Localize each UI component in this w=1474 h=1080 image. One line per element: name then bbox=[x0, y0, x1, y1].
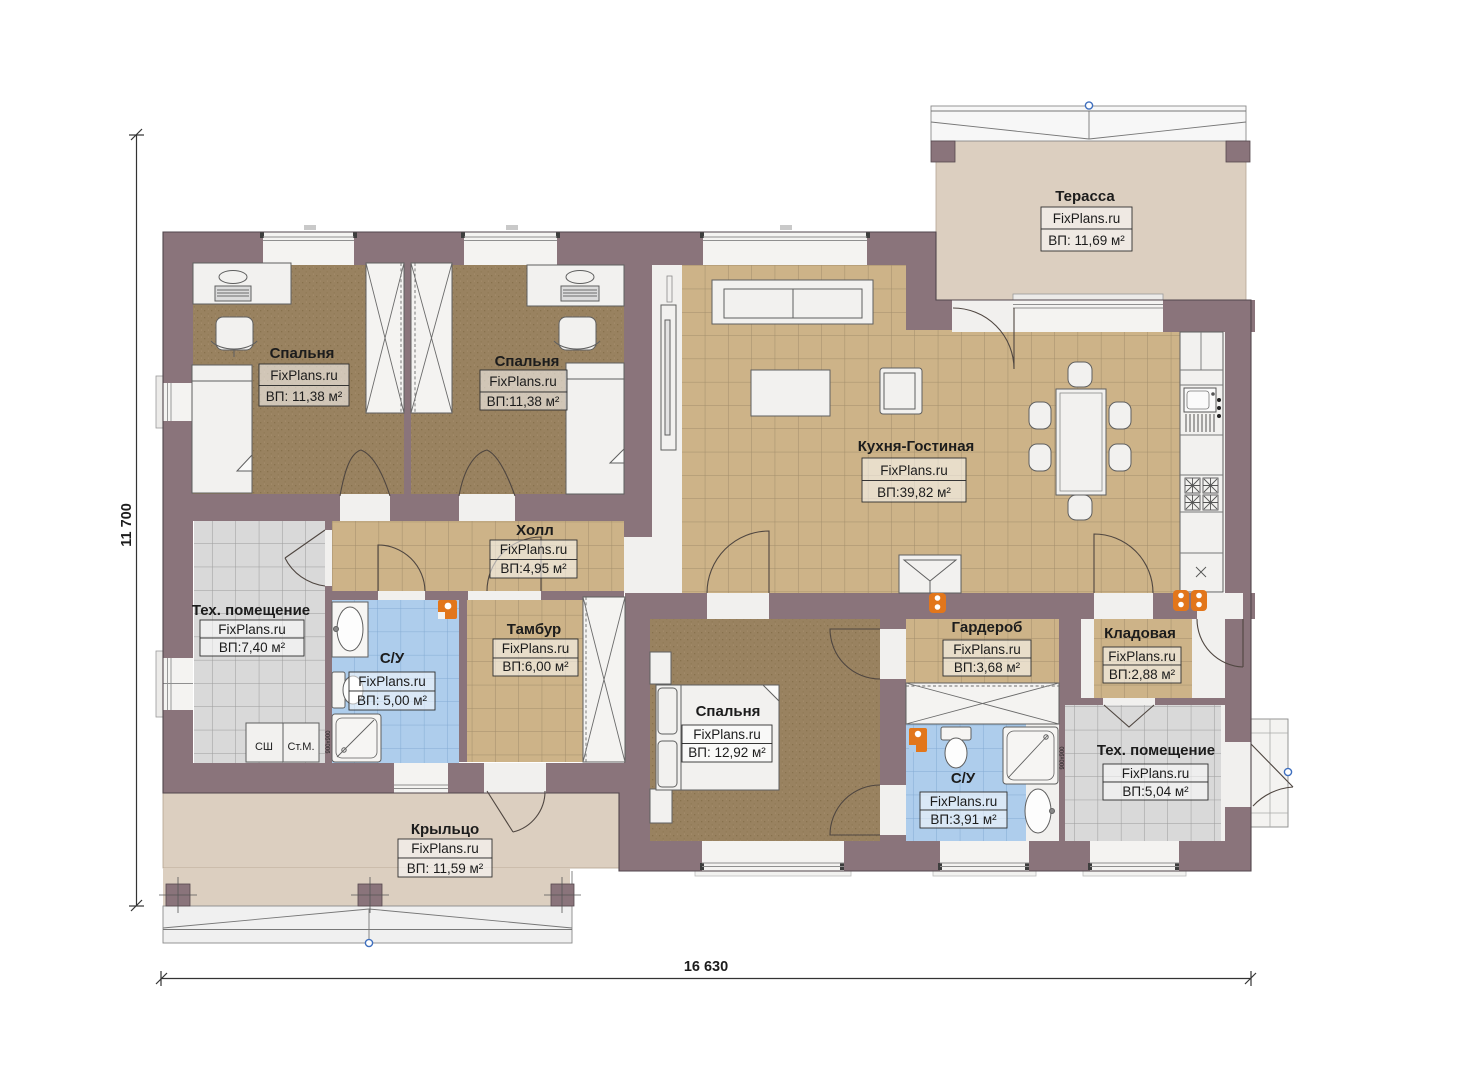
svg-text:ВП:5,04 м²: ВП:5,04 м² bbox=[1122, 784, 1189, 799]
svg-text:ВП: 11,59 м²: ВП: 11,59 м² bbox=[407, 861, 484, 876]
svg-text:Тех. помещение: Тех. помещение bbox=[1097, 742, 1215, 759]
svg-text:Крыльцо: Крыльцо bbox=[411, 821, 479, 838]
svg-text:ВП:4,95 м²: ВП:4,95 м² bbox=[500, 561, 567, 576]
svg-text:FixPlans.ru: FixPlans.ru bbox=[1122, 766, 1190, 781]
svg-text:FixPlans.ru: FixPlans.ru bbox=[358, 674, 426, 689]
svg-text:FixPlans.ru: FixPlans.ru bbox=[693, 727, 761, 742]
svg-text:Спальня: Спальня bbox=[495, 353, 560, 370]
svg-text:ВП:7,40 м²: ВП:7,40 м² bbox=[219, 640, 286, 655]
svg-text:Холл: Холл bbox=[516, 522, 554, 539]
svg-text:FixPlans.ru: FixPlans.ru bbox=[500, 542, 568, 557]
svg-text:ВП:11,38 м²: ВП:11,38 м² bbox=[487, 394, 560, 409]
svg-text:FixPlans.ru: FixPlans.ru bbox=[218, 622, 286, 637]
svg-text:FixPlans.ru: FixPlans.ru bbox=[489, 374, 557, 389]
svg-text:Тех. помещение: Тех. помещение bbox=[192, 602, 310, 619]
svg-text:FixPlans.ru: FixPlans.ru bbox=[953, 642, 1021, 657]
svg-text:ВП:39,82 м²: ВП:39,82 м² bbox=[877, 485, 951, 500]
svg-text:ВП:2,88 м²: ВП:2,88 м² bbox=[1109, 667, 1176, 682]
svg-text:FixPlans.ru: FixPlans.ru bbox=[411, 841, 479, 856]
svg-text:Кухня-Гостиная: Кухня-Гостиная bbox=[858, 438, 975, 455]
svg-text:FixPlans.ru: FixPlans.ru bbox=[1108, 649, 1176, 664]
svg-text:11 700: 11 700 bbox=[119, 503, 135, 547]
svg-text:С/У: С/У bbox=[380, 650, 405, 667]
svg-text:FixPlans.ru: FixPlans.ru bbox=[1053, 211, 1121, 226]
svg-text:FixPlans.ru: FixPlans.ru bbox=[930, 794, 998, 809]
svg-text:FixPlans.ru: FixPlans.ru bbox=[270, 368, 338, 383]
svg-text:СШ: СШ bbox=[255, 741, 273, 753]
svg-text:С/У: С/У bbox=[951, 770, 976, 787]
svg-text:Кладовая: Кладовая bbox=[1104, 625, 1176, 642]
svg-text:FixPlans.ru: FixPlans.ru bbox=[880, 463, 948, 478]
svg-text:ВП:6,00 м²: ВП:6,00 м² bbox=[502, 659, 569, 674]
svg-text:ВП:3,68 м²: ВП:3,68 м² bbox=[954, 660, 1021, 675]
svg-text:ВП: 11,69 м²: ВП: 11,69 м² bbox=[1048, 233, 1125, 248]
svg-text:Спальня: Спальня bbox=[696, 703, 761, 720]
svg-text:Ст.М.: Ст.М. bbox=[287, 741, 314, 753]
svg-text:ВП:3,91 м²: ВП:3,91 м² bbox=[930, 812, 997, 827]
svg-text:ВП: 12,92 м²: ВП: 12,92 м² bbox=[688, 745, 766, 760]
svg-text:ВП: 11,38 м²: ВП: 11,38 м² bbox=[266, 389, 343, 404]
svg-text:16 630: 16 630 bbox=[684, 959, 728, 975]
svg-text:FixPlans.ru: FixPlans.ru bbox=[502, 641, 570, 656]
svg-text:900х900: 900х900 bbox=[326, 730, 332, 754]
svg-text:900х900: 900х900 bbox=[1060, 746, 1066, 770]
svg-text:Тамбур: Тамбур bbox=[507, 621, 561, 638]
svg-text:Гардероб: Гардероб bbox=[952, 619, 1023, 636]
svg-text:Спальня: Спальня bbox=[270, 345, 335, 362]
svg-text:Терасса: Терасса bbox=[1055, 188, 1115, 205]
svg-text:ВП: 5,00 м²: ВП: 5,00 м² bbox=[357, 693, 428, 708]
